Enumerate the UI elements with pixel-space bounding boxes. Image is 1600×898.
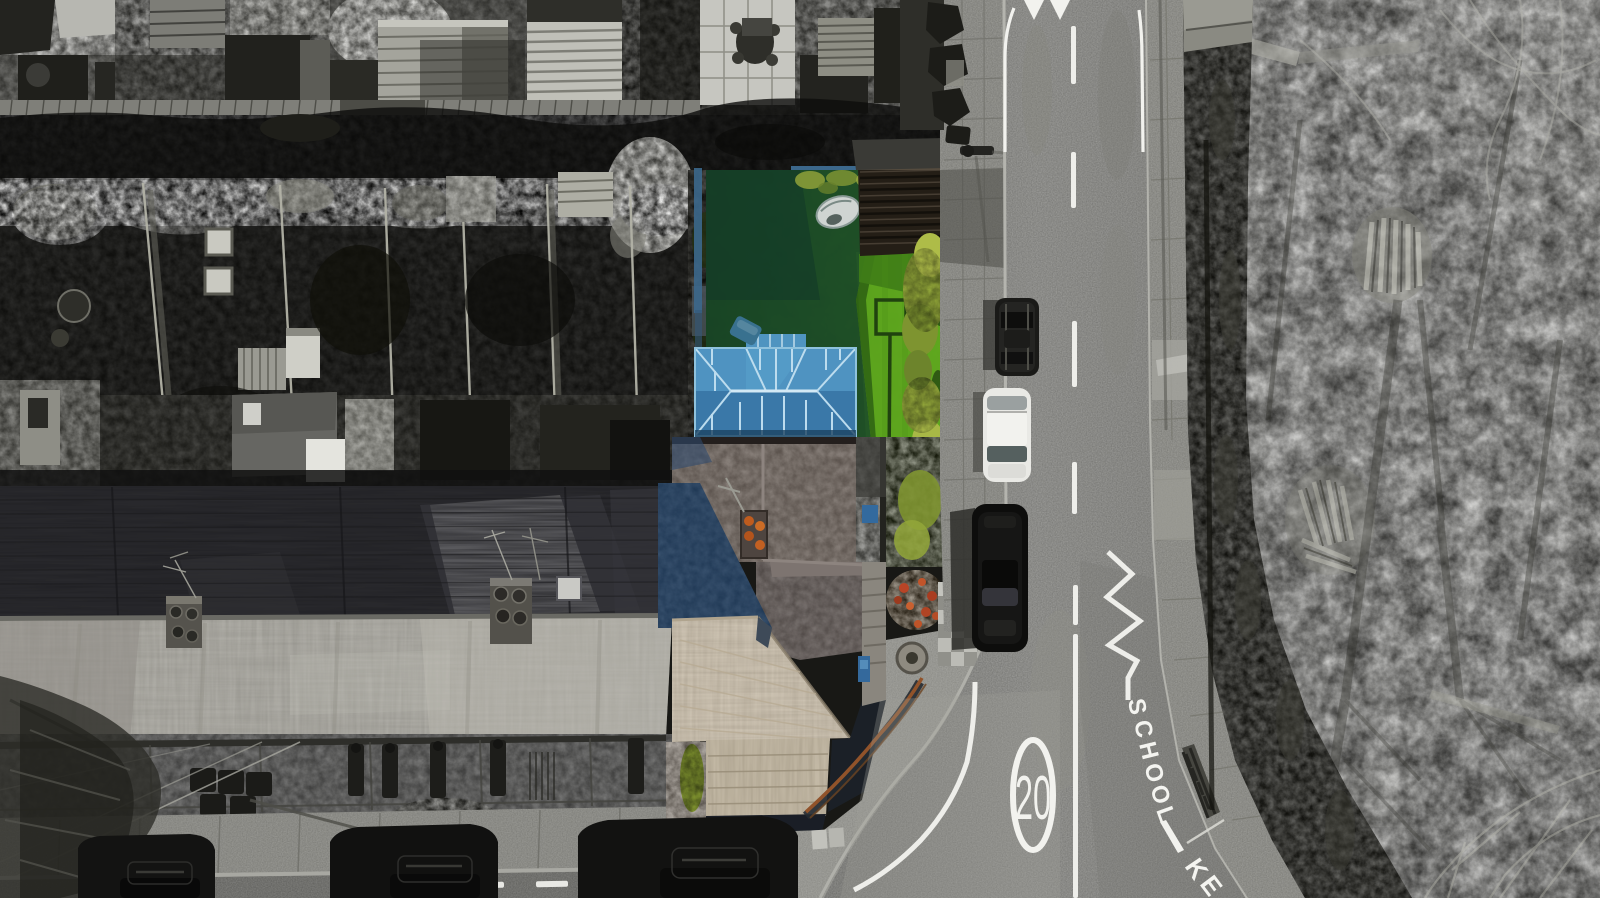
svg-text:20: 20 (1015, 764, 1051, 833)
